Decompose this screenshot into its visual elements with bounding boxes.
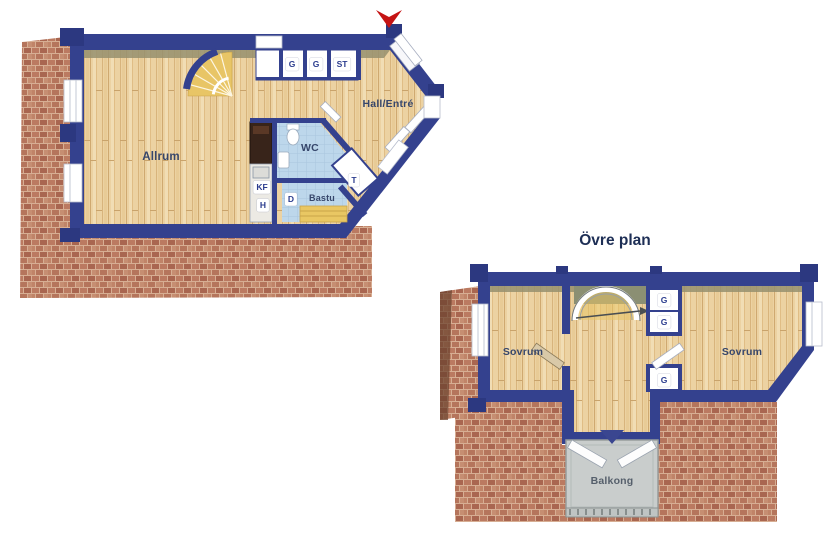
ground-closet-strip: [256, 50, 361, 80]
ground-floor-plan: [20, 10, 444, 298]
floorplan-page: Övre plan Allrum Hall/Entré WC Bastu G G…: [0, 0, 830, 555]
balcony: [566, 430, 658, 517]
floorplan-graphic: [0, 0, 830, 555]
upper-floor-plan: [440, 264, 822, 522]
